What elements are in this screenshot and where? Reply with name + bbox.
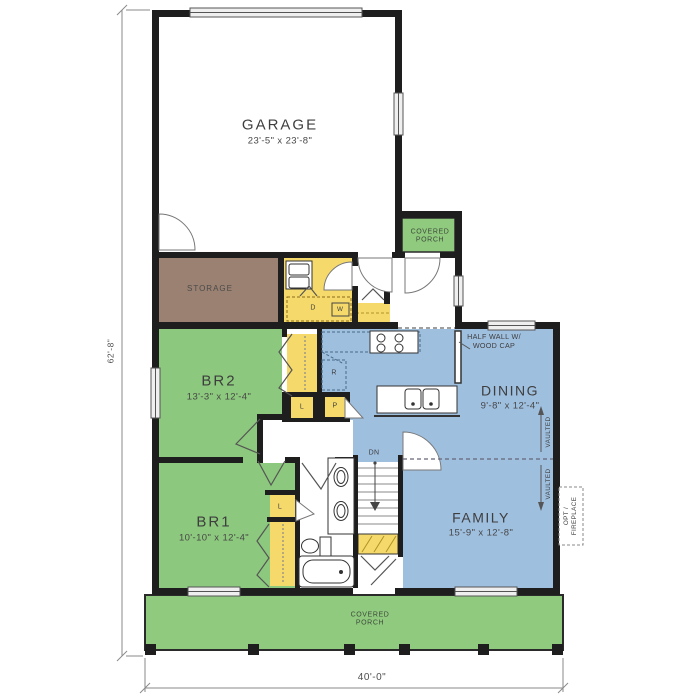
br2-closet xyxy=(287,334,317,392)
room-name: GARAGE xyxy=(242,117,318,136)
covered-porch-upper-label: COVERED PORCH xyxy=(411,229,450,246)
washer-label: W xyxy=(337,306,343,314)
kitchen-sink-icon xyxy=(405,389,421,409)
storage-label: STORAGE xyxy=(187,284,233,294)
br1-label: BR1 10'-10" x 12'-4" xyxy=(179,514,249,545)
understair-closet xyxy=(358,534,398,554)
width-dimension: 40'-0" xyxy=(358,672,386,685)
half-wall-label: HALF WALL W/ WOOD CAP xyxy=(467,332,521,350)
opt-fireplace-label: OPT / FIREPLACE xyxy=(563,497,579,536)
toilet-icon xyxy=(320,537,331,556)
room-br2-lower xyxy=(159,420,257,463)
vaulted-label-dining: VAULTED xyxy=(545,417,553,448)
bathtub-icon xyxy=(299,556,354,587)
range-label: R xyxy=(331,370,336,379)
linen2-label: L xyxy=(278,504,282,513)
porch-entry-door xyxy=(405,258,440,293)
floor-plan: GARAGE 23'-5" x 23'-8" STORAGE COVERED P… xyxy=(0,0,700,700)
pantry-label: P xyxy=(333,403,338,412)
height-dimension: 62'-8" xyxy=(106,339,117,364)
garage-service-door xyxy=(159,214,195,250)
half-wall xyxy=(455,331,461,383)
family-label: FAMILY 15'-9" x 12'-8" xyxy=(449,509,513,538)
br2-label: BR2 13'-3" x 12'-4" xyxy=(187,373,251,404)
room-dims: 23'-5" x 23'-8" xyxy=(242,135,318,147)
hallway xyxy=(263,420,353,462)
covered-porch-lower-label: COVERED PORCH xyxy=(351,612,390,629)
garage-entry-door xyxy=(358,258,392,292)
linen1-label: L xyxy=(300,404,304,413)
vaulted-label-family: VAULTED xyxy=(545,469,553,500)
stairs-dn-label: DN xyxy=(369,450,380,459)
garage-label: GARAGE 23'-5" x 23'-8" xyxy=(242,117,318,148)
linen-closet-2 xyxy=(270,495,295,519)
dining-label: DINING 9'-8" x 12'-4" xyxy=(481,382,540,411)
kitchen-island xyxy=(374,386,460,416)
dryer-label: D xyxy=(310,305,315,314)
